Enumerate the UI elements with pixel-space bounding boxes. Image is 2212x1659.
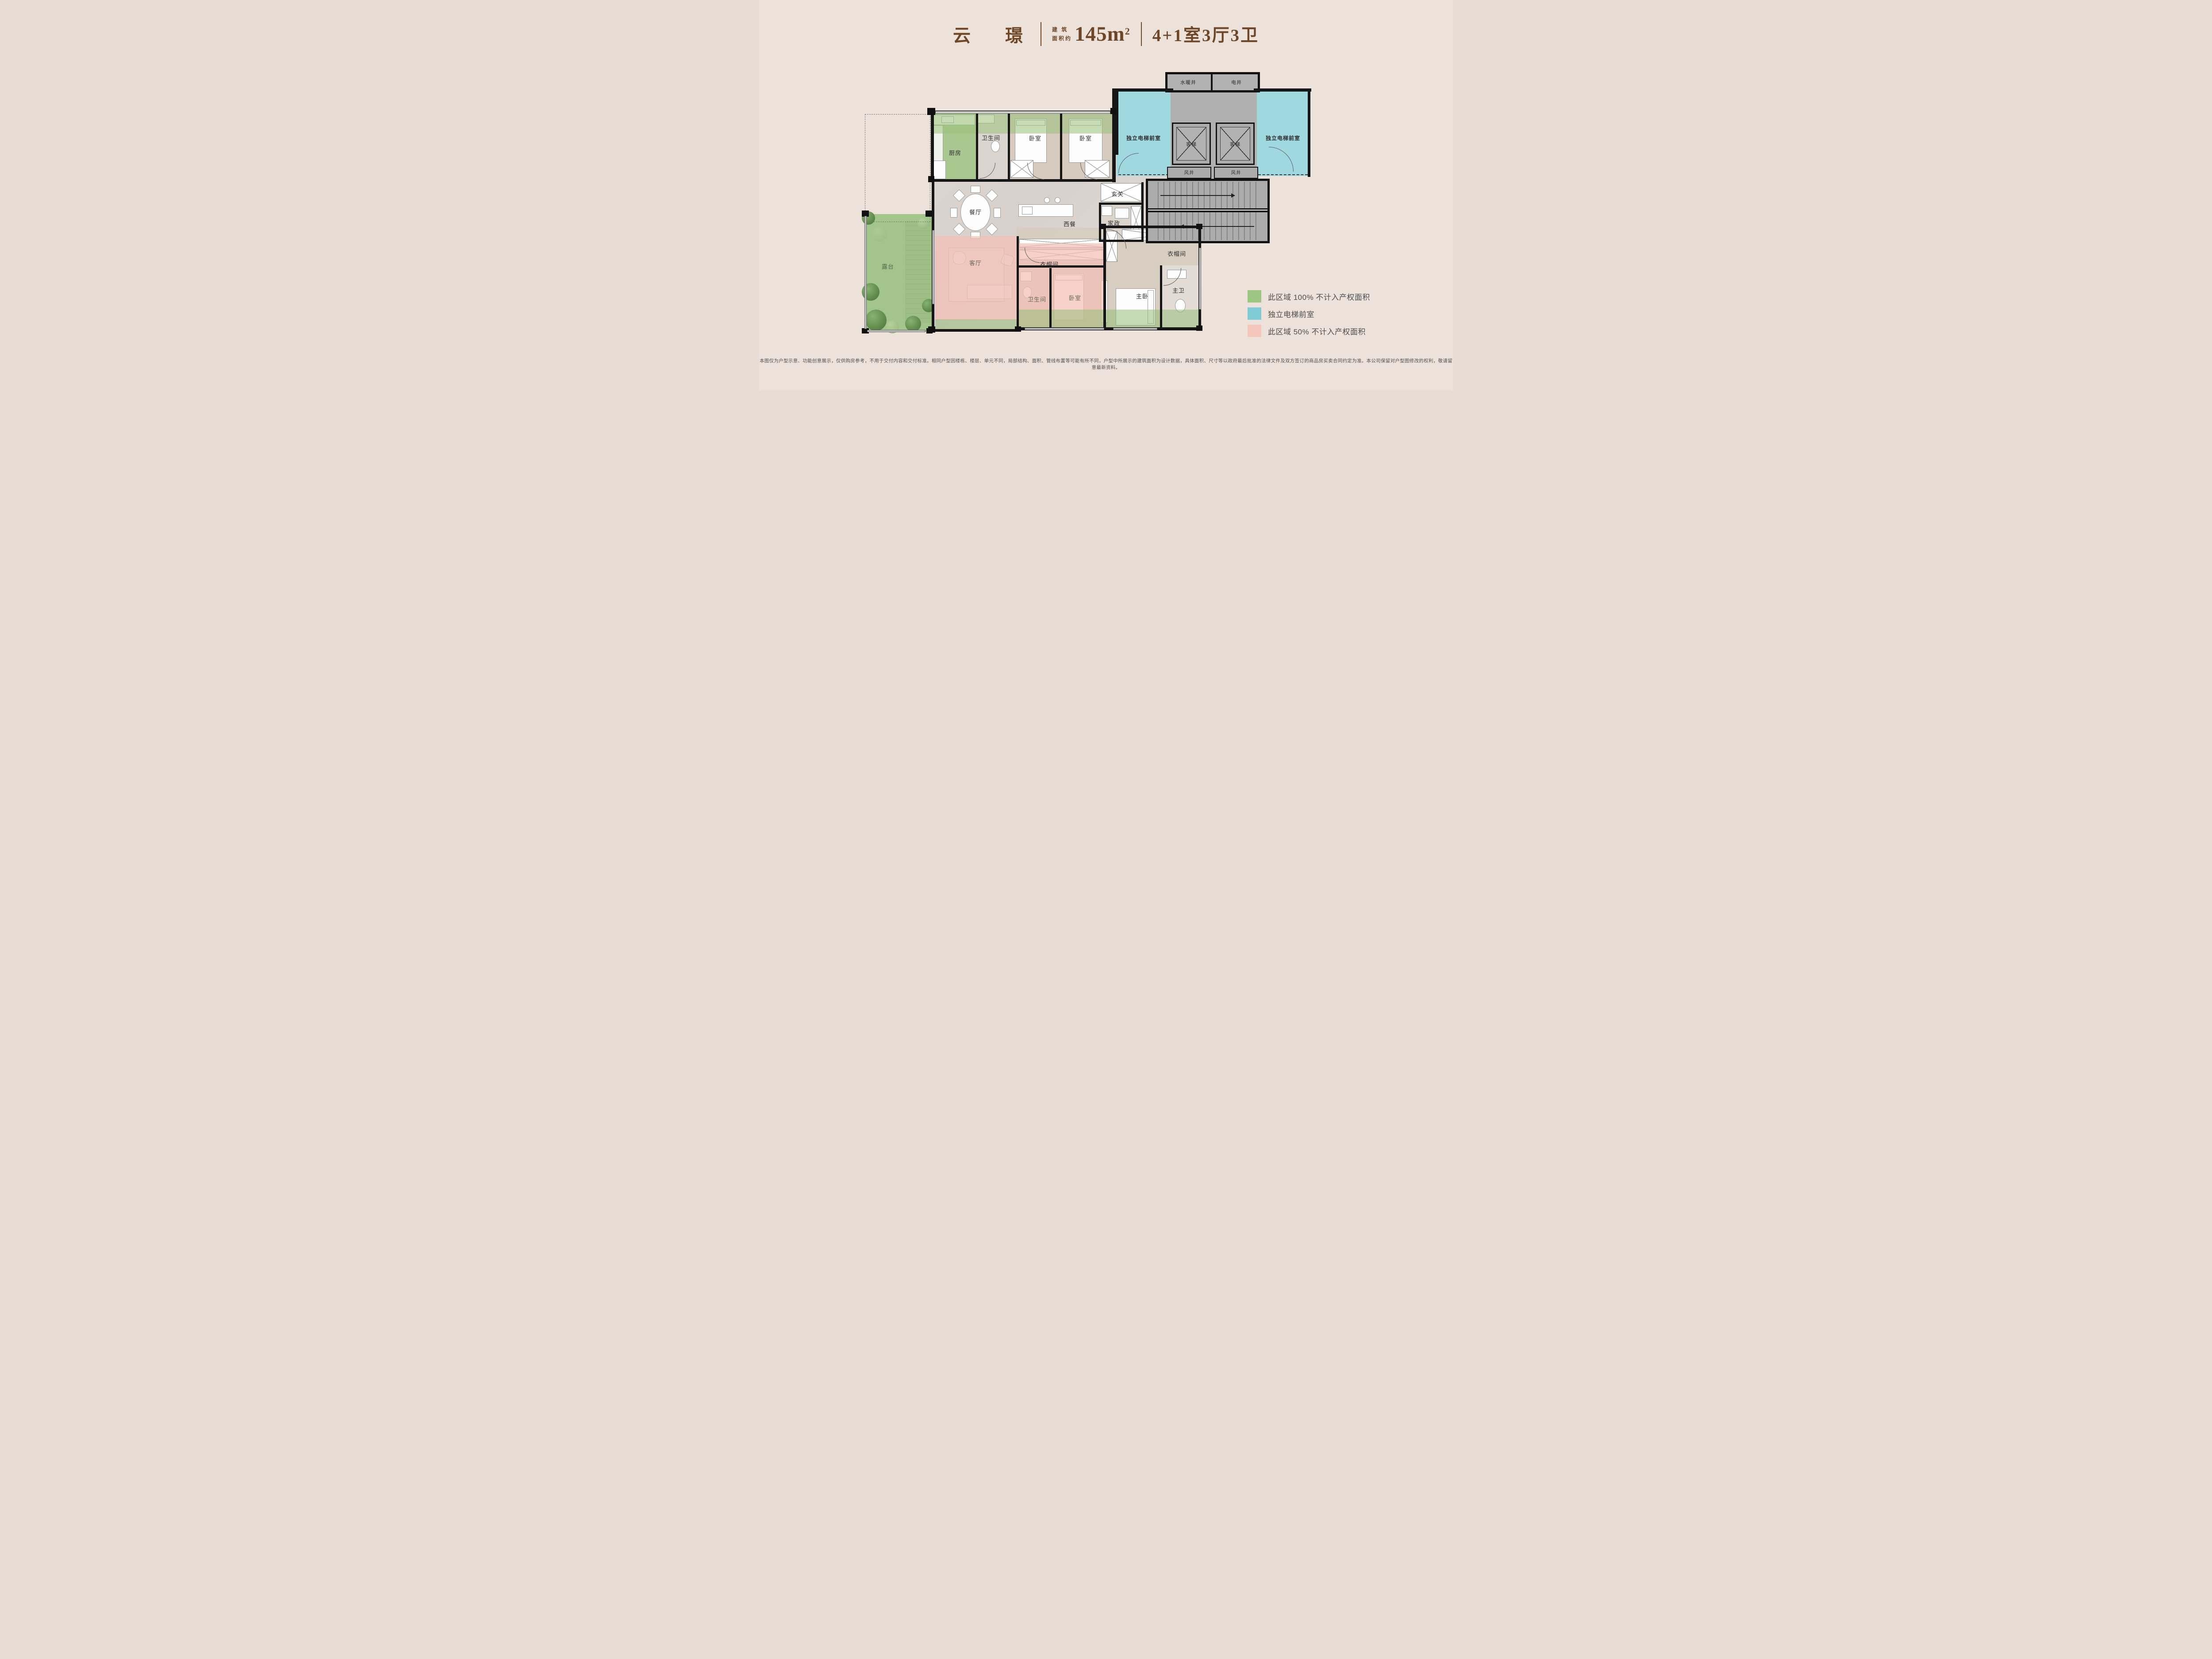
legend: 此区域 100% 不计入产权面积 独立电梯前室 此区域 50% 不计入产权面积 [1248, 290, 1370, 337]
label-bathroom-top: 卫生间 [982, 134, 1000, 142]
label-bedroom-bottom: 卧室 [1069, 294, 1081, 302]
label-kitchen: 厨房 [949, 149, 961, 157]
laundry-sink [1115, 208, 1129, 218]
stool [1044, 197, 1050, 203]
column-pier [927, 108, 935, 115]
stool [1055, 197, 1060, 203]
legend-swatch-pink [1248, 325, 1261, 337]
label-cloakroom-mid: 衣帽间 [1040, 260, 1059, 268]
label-elevator-left: 客梯 [1186, 141, 1197, 148]
wall [1116, 88, 1173, 92]
label-housekeeping: 家政 [1108, 219, 1120, 227]
column-pier [926, 211, 933, 217]
column-pier [1196, 326, 1202, 331]
disclaimer-text: 本图仅为户型示意、功能创意展示，仅供购房参考，不用于交付内容和交付标准。相同户型… [759, 357, 1453, 371]
staircase [1146, 179, 1270, 243]
label-living: 客厅 [969, 259, 982, 267]
window-band-terrace [864, 216, 867, 329]
wall [1116, 88, 1118, 155]
column-pier [1110, 108, 1117, 114]
legend-label-blue: 独立电梯前室 [1268, 308, 1314, 319]
label-air-shaft-left: 风井 [1184, 169, 1194, 176]
wall [976, 111, 978, 182]
wall [1008, 111, 1010, 182]
legend-item-pink: 此区域 50% 不计入产权面积 [1248, 325, 1370, 337]
washer-icon [1102, 206, 1112, 216]
shaft-block [1165, 72, 1260, 92]
wall [1099, 203, 1143, 205]
wall [931, 111, 934, 182]
label-bedroom-1: 卧室 [1029, 134, 1041, 142]
label-dining: 餐厅 [969, 208, 982, 216]
wall [1018, 265, 1104, 268]
label-water-heating-shaft: 水暖井 [1180, 79, 1196, 86]
kitchen-stove [933, 161, 946, 179]
green-overlay-bottom-band [1018, 310, 1200, 329]
legend-label-green: 此区域 100% 不计入产权面积 [1268, 291, 1370, 302]
label-electric-shaft: 电井 [1231, 79, 1242, 86]
tree-icon [865, 310, 887, 331]
wall [931, 179, 1116, 182]
column-pier [926, 328, 933, 333]
label-bathroom-bottom: 卫生间 [1028, 295, 1046, 303]
stair-arrow [1231, 193, 1235, 198]
green-overlay-top-band [933, 114, 1112, 134]
stair-direction-line [1160, 195, 1231, 196]
shaft-divider [1211, 73, 1213, 91]
window-band-bottom [1113, 328, 1157, 330]
stair-landing [1148, 208, 1267, 212]
column-pier [1100, 224, 1106, 229]
label-entry: 玄关 [1111, 190, 1124, 198]
legend-swatch-blue [1248, 307, 1261, 320]
window-band-master-east [1199, 248, 1201, 310]
legend-swatch-green [1248, 290, 1261, 303]
dining-chair [994, 208, 1001, 218]
column-pier [928, 176, 934, 182]
column-pier [1196, 224, 1202, 229]
floorplan-page: 云 璟 建 筑 面积约 145m2 4+1室3厅3卫 [759, 0, 1453, 390]
tree-icon [905, 316, 921, 332]
label-bedroom-2: 卧室 [1079, 134, 1092, 142]
pink-overlay-living [935, 236, 1017, 320]
label-master-bedroom: 主卧 [1136, 292, 1148, 300]
vestibule-dashed-edge [1258, 174, 1308, 175]
window-band-terrace-south [867, 330, 926, 332]
wall [1141, 182, 1144, 242]
window-band-living-west [932, 230, 934, 304]
window-band-bottom [1025, 328, 1104, 330]
wall [1160, 265, 1162, 328]
label-master-bath: 主卫 [1172, 286, 1185, 295]
legend-label-pink: 此区域 50% 不计入产权面积 [1268, 326, 1366, 337]
column-pier [1015, 326, 1021, 332]
island-sink [1022, 207, 1033, 215]
label-terrace: 露台 [882, 262, 894, 271]
label-elevator-right: 客梯 [1230, 141, 1240, 148]
dining-chair [971, 186, 980, 193]
wall [1254, 88, 1311, 92]
label-western-dining: 西餐 [1064, 220, 1076, 228]
wall [1060, 111, 1062, 182]
toilet-icon [991, 141, 1000, 152]
dining-chair [950, 208, 957, 218]
void-dashed-outline [865, 114, 930, 222]
window-band-top [935, 111, 1110, 114]
label-vestibule-left: 独立电梯前室 [1126, 134, 1161, 142]
wall [932, 329, 1018, 332]
wall [1049, 268, 1052, 328]
vestibule-dashed-edge [1118, 174, 1169, 175]
label-cloakroom-master: 衣帽间 [1167, 249, 1186, 258]
wall [1099, 203, 1101, 242]
legend-item-green: 此区域 100% 不计入产权面积 [1248, 290, 1370, 303]
wall [1308, 88, 1310, 177]
label-air-shaft-right: 风井 [1231, 169, 1241, 176]
wall [1017, 236, 1019, 330]
tree-icon [872, 226, 887, 241]
label-vestibule-right: 独立电梯前室 [1266, 134, 1300, 142]
legend-item-blue: 独立电梯前室 [1248, 307, 1370, 320]
wall [1112, 88, 1116, 182]
